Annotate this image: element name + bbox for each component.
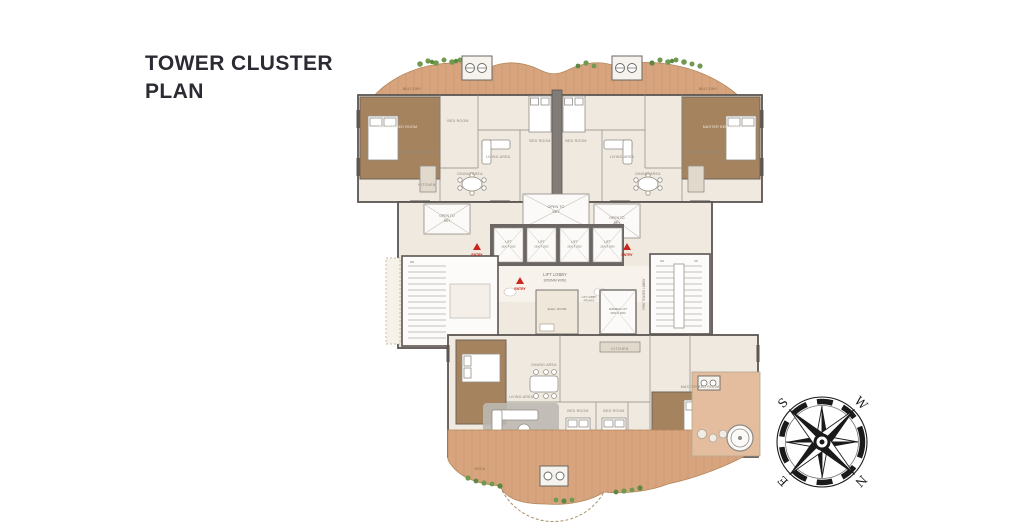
jacuzzi-icon	[727, 425, 753, 451]
room-label: BED ROOM	[567, 409, 588, 413]
room-label: LIVING AREA	[610, 155, 635, 159]
elec-room-label: ELEC. ROOM	[548, 307, 567, 311]
svg-text:PRIVATE: PRIVATE	[584, 299, 595, 303]
svg-text:2600 X 2600: 2600 X 2600	[534, 246, 549, 249]
staircase-left: DN UP	[402, 256, 498, 346]
lift-cell: LIFT 2600 X 2600	[593, 228, 622, 262]
room-label: KITCHEN	[611, 347, 628, 351]
room-label: BED ROOM	[447, 119, 468, 123]
svg-text:SKY: SKY	[444, 219, 452, 223]
svg-text:2600 X 2600: 2600 X 2600	[501, 246, 516, 249]
compass-north-label: N	[852, 472, 869, 489]
room-label: BED ROOM	[529, 139, 550, 143]
entry-label: ENTRY	[621, 253, 633, 257]
open-to-sky-center: OPEN TO SKY	[523, 194, 589, 228]
floor-plan-svg: OPEN TO SKY OPEN TO SKY OPEN TO SKY	[0, 0, 1024, 531]
stairs-dn-label: DN	[660, 259, 664, 263]
open-to-sky-label: OPEN TO	[548, 205, 565, 209]
room-label: BED ROOM	[565, 139, 586, 143]
svg-text:3050MM WIDE: 3050MM WIDE	[544, 279, 568, 283]
room-label: BED ROOM	[603, 409, 624, 413]
svg-text:3000 X 2600: 3000 X 2600	[610, 311, 626, 315]
private-lobby: LIFT LOBBY PRIVATE	[582, 295, 597, 303]
open-to-sky-label: OPEN TO	[439, 214, 454, 218]
side-terrace	[386, 258, 400, 344]
svg-text:2600 X 2600: 2600 X 2600	[567, 246, 582, 249]
room-label: MASTER BED ROOM	[703, 125, 742, 129]
room-label: BALCONY	[403, 87, 422, 91]
page: TOWER CLUSTER PLAN	[0, 0, 1024, 531]
room-label: LIVING AREA	[509, 395, 534, 399]
svg-text:SKY: SKY	[552, 210, 560, 214]
firemen-lift-label: FIREMEN LIFT	[609, 307, 628, 311]
lift-cell: LIFT 2600 X 2600	[527, 228, 556, 262]
lift-lobby-label: LIFT LOBBY	[543, 272, 567, 277]
elec-room: ELEC. ROOM	[536, 290, 578, 334]
open-to-sky-label: OPEN TO	[609, 216, 624, 220]
compass-south-label: S	[775, 395, 791, 411]
lift-label: LIFT	[538, 240, 545, 244]
service-duct	[552, 90, 562, 196]
stairs-up-label: UP	[694, 259, 698, 263]
room-label: DECK	[475, 467, 486, 471]
firemen-lift: FIREMEN LIFT 3000 X 2600	[600, 290, 636, 334]
lift-label: LIFT	[604, 240, 611, 244]
room-label: BALCONY	[699, 87, 718, 91]
fire-staircase-right: DN UP FIRE TOWER LOBBY	[642, 254, 710, 334]
room-label: LIVING AREA	[486, 155, 511, 159]
lift-label: LIFT	[505, 240, 512, 244]
private-lobby-label: LIFT LOBBY	[582, 295, 597, 299]
compass-rose: S W N E	[775, 394, 871, 490]
entry-label: ENTRY	[471, 253, 483, 257]
lift-bank: LIFT 2600 X 2600 LIFT 2600 X 2600 LIFT 2…	[490, 224, 624, 266]
room-label: DINING AREA	[457, 172, 483, 176]
central-core: OPEN TO SKY OPEN TO SKY OPEN TO SKY	[386, 194, 712, 348]
stairs-dn-label: DN	[410, 260, 414, 264]
open-to-sky-left: OPEN TO SKY	[424, 204, 470, 234]
lift-label: LIFT	[571, 240, 578, 244]
utility-box-icon	[540, 466, 568, 486]
room-label: KITCHEN	[418, 183, 435, 187]
compass-east-label: E	[775, 473, 791, 489]
lift-cell: LIFT 2600 X 2600	[560, 228, 589, 262]
room-label: MASTER BED ROOM	[379, 125, 418, 129]
svg-text:2600 X 2600: 2600 X 2600	[600, 246, 615, 249]
room-label: MASTER BED ROOM	[681, 385, 720, 389]
room-label: DINING AREA	[635, 172, 661, 176]
fire-tower-lobby-label: FIRE TOWER LOBBY	[642, 277, 646, 309]
room-label: DINING AREA	[531, 363, 557, 367]
entry-label: ENTRY	[514, 287, 526, 291]
